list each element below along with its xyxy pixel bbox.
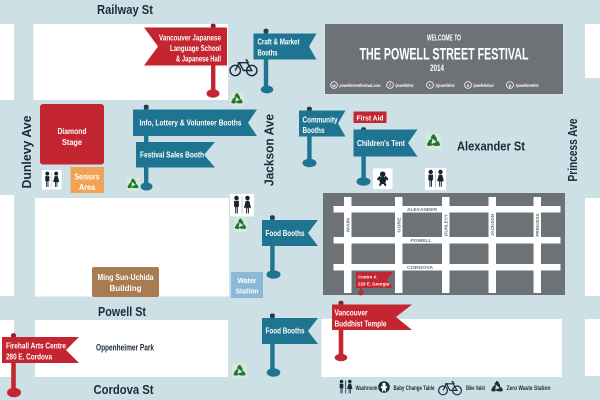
- svg-text:powellstreetfestival.com: powellstreetfestival.com: [340, 83, 381, 88]
- svg-text:Diamond: Diamond: [58, 127, 87, 136]
- svg-text:GORE: GORE: [397, 218, 402, 233]
- svg-text:Jackson Ave: Jackson Ave: [262, 114, 277, 186]
- svg-text:Firehall Arts Centre: Firehall Arts Centre: [6, 342, 66, 351]
- svg-text:Vancouver: Vancouver: [335, 309, 368, 318]
- svg-text:Zero Waste Station: Zero Waste Station: [507, 385, 551, 392]
- svg-text:Princess Ave: Princess Ave: [565, 119, 580, 182]
- svg-text:PRINCESS: PRINCESS: [535, 214, 540, 237]
- svg-text:/powellstfestival: /powellstfestival: [474, 83, 494, 88]
- svg-text:JACKSON: JACKSON: [490, 214, 495, 236]
- svg-text:Bike Valet: Bike Valet: [466, 385, 486, 392]
- svg-text:Food Booths: Food Booths: [266, 326, 305, 336]
- svg-text:w: w: [331, 83, 336, 88]
- svg-text:Food Booths: Food Booths: [266, 228, 305, 238]
- svg-text:Oppenheimer Park: Oppenheimer Park: [96, 343, 155, 353]
- svg-text:Festival Sales Booth: Festival Sales Booth: [140, 151, 204, 160]
- svg-text:Powell St: Powell St: [98, 304, 147, 319]
- svg-text:Railway St: Railway St: [97, 2, 154, 17]
- svg-text:2014: 2014: [430, 63, 444, 73]
- svg-text:Craft & Market: Craft & Market: [258, 38, 300, 47]
- svg-text:Language School: Language School: [170, 44, 221, 53]
- svg-text:CORDOVA: CORDOVA: [407, 265, 434, 270]
- svg-text:Community: Community: [303, 116, 338, 125]
- svg-text:Vancouver Japanese: Vancouver Japanese: [159, 34, 221, 43]
- svg-text:POWELL: POWELL: [411, 238, 432, 243]
- svg-text:@powellsfest: @powellsfest: [436, 83, 455, 88]
- svg-text:& Japanese Hall: & Japanese Hall: [176, 55, 221, 64]
- svg-text:Ming Sun-Uchida: Ming Sun-Uchida: [98, 273, 154, 282]
- svg-text:Washroom: Washroom: [356, 385, 378, 392]
- svg-text:ALEXANDER: ALEXANDER: [407, 207, 438, 212]
- svg-text:280 E. Cordova: 280 E. Cordova: [6, 353, 52, 362]
- svg-text:#powellstreetfest: #powellstreetfest: [516, 83, 539, 88]
- svg-text:Baby Change Table: Baby Change Table: [394, 385, 435, 392]
- svg-text:Buddhist Temple: Buddhist Temple: [335, 320, 387, 329]
- svg-text:Building: Building: [110, 284, 142, 293]
- svg-text:Booths: Booths: [258, 49, 278, 58]
- svg-text:Dunlevy Ave: Dunlevy Ave: [19, 116, 34, 189]
- svg-text:MAIN: MAIN: [346, 218, 351, 232]
- svg-text:Station: Station: [236, 287, 259, 296]
- svg-text:THE POWELL STREET FESTIVAL: THE POWELL STREET FESTIVAL: [360, 45, 529, 64]
- svg-text:First Aid: First Aid: [357, 114, 384, 123]
- svg-text:Area: Area: [79, 183, 95, 192]
- svg-text:Stage: Stage: [62, 138, 82, 147]
- svg-text:Info, Lottery & Volunteer Boot: Info, Lottery & Volunteer Booths: [140, 119, 242, 128]
- svg-text:Children's Tent: Children's Tent: [357, 139, 405, 148]
- svg-text:Alexander St: Alexander St: [457, 139, 526, 154]
- svg-text:p: p: [509, 83, 512, 88]
- svg-text:Cordova St: Cordova St: [94, 382, 155, 397]
- svg-text:Centre A: Centre A: [358, 275, 377, 280]
- svg-text:Water: Water: [238, 276, 257, 285]
- svg-text:WELCOME TO: WELCOME TO: [427, 34, 461, 43]
- svg-text:/powellstfest: /powellstfest: [396, 83, 414, 88]
- svg-text:o: o: [467, 83, 470, 88]
- svg-text:Seniors: Seniors: [75, 173, 100, 182]
- svg-text:229 E. Georgia: 229 E. Georgia: [358, 282, 390, 287]
- svg-text:DUNLEVY: DUNLEVY: [444, 214, 449, 236]
- svg-text:Booths: Booths: [303, 126, 325, 135]
